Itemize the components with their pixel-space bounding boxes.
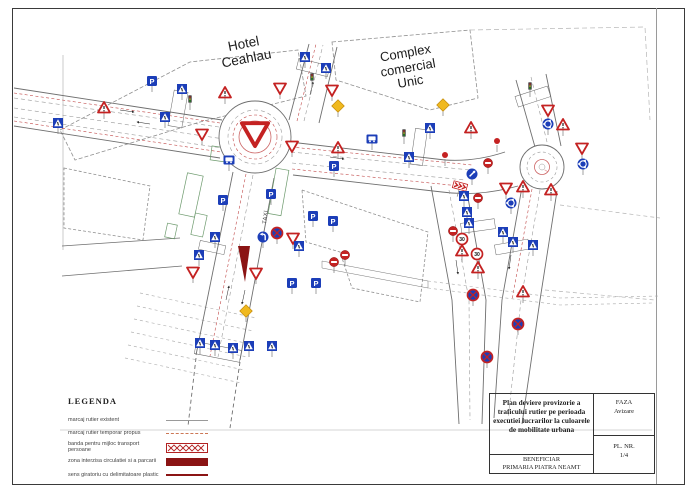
legend-item-public-transport-lane: banda pentru mijloc transport persoane [68, 442, 208, 453]
yield-sign-icon [250, 269, 262, 285]
pedestrian-crossing-sign-icon [528, 240, 538, 256]
yield-sign-icon [576, 144, 588, 160]
svg-text:P: P [330, 217, 335, 226]
legend: LEGENDA marcaj rutier existent marcaj ru… [68, 396, 208, 484]
legend-item-closed-zone: zona interzisa circulatiei si a parcarii [68, 458, 208, 467]
plate-number-cell: PL. NR. 1/4 [594, 436, 654, 473]
pedestrian-crossing-sign-icon [498, 227, 508, 243]
beneficiary-cell: BENEFICIAR PRIMARIA PIATRA NEAMT [490, 454, 593, 473]
svg-text:P: P [268, 190, 273, 199]
taxi-bay-label: TAXI [262, 210, 270, 224]
plan-sheet: TAXI PPPPPPPP3030 Hotel Ceahlau Complex … [0, 0, 696, 491]
bus-stop-sign-icon [224, 156, 235, 172]
parking-sign-icon: P [287, 278, 297, 294]
priority-road-sign-icon [332, 100, 344, 117]
zigzag-swatch-icon [166, 443, 208, 453]
beneficiary-value: PRIMARIA PIATRA NEAMT [492, 464, 591, 472]
beneficiary-label: BENEFICIAR [492, 456, 591, 464]
parking-sign-icon: P [328, 216, 338, 232]
bus-stop-sign-icon [367, 135, 378, 151]
parking-sign-icon: P [218, 195, 228, 211]
svg-text:P: P [149, 77, 154, 86]
traffic-light-icon [402, 129, 405, 144]
svg-text:P: P [289, 279, 294, 288]
no-stopping-sign-icon [482, 352, 493, 369]
warning-sign-icon [465, 122, 477, 139]
plate-number-label: PL. NR. [594, 442, 654, 451]
svg-text:P: P [313, 279, 318, 288]
phase-label: FAZA [594, 398, 654, 407]
yield-sign-icon [196, 130, 208, 146]
turn-left-sign-icon [258, 232, 269, 249]
svg-text:P: P [310, 212, 315, 221]
pedestrian-crossing-sign-icon [244, 341, 254, 357]
pedestrian-crossing-sign-icon [267, 341, 277, 357]
yield-sign-icon [500, 184, 512, 200]
legend-item-giratory: sens giratoriu cu delimitatoare plastic [68, 471, 208, 480]
title-block: Plan deviere provizorie a traficului rut… [489, 393, 655, 474]
parking-sign-icon: P [329, 161, 339, 177]
pedestrian-crossing-sign-icon [294, 241, 304, 257]
roundabout-2 [520, 145, 564, 189]
phase-value: Avizare [594, 407, 654, 416]
no-stopping-sign-icon [272, 228, 283, 245]
svg-text:30: 30 [474, 252, 480, 258]
legend-item-existing-marking: marcaj rutier existent [68, 416, 208, 425]
traffic-light-icon [310, 73, 313, 88]
no-entry-sign-icon [473, 193, 482, 209]
roundabout-sign-icon [543, 118, 554, 135]
svg-text:P: P [331, 162, 336, 171]
closed-zone-island [238, 246, 250, 282]
roundabout-sign-icon [506, 197, 517, 214]
legend-swatch-closed-zone [166, 458, 208, 467]
parking-sign-icon: P [308, 211, 318, 227]
warning-sign-icon [517, 286, 529, 303]
phase-cell: FAZA Avizare [594, 394, 654, 436]
yield-sign-icon [326, 86, 338, 102]
pedestrian-crossing-sign-icon [194, 250, 204, 266]
pedestrian-crossing-sign-icon [459, 191, 469, 207]
svg-text:30: 30 [459, 237, 465, 243]
priority-road-sign-icon [240, 305, 252, 322]
roundabout-sign-icon [578, 158, 589, 175]
legend-swatch-giratory [166, 471, 208, 480]
pedestrian-crossing-sign-icon [321, 63, 331, 79]
plate-number-value: 1/4 [594, 451, 654, 460]
construction-strip [322, 261, 428, 288]
no-entry-sign-icon [340, 250, 349, 266]
warning-sign-icon [456, 245, 468, 262]
parking-sign-icon: P [311, 278, 321, 294]
svg-text:P: P [220, 196, 225, 205]
drawing-title: Plan deviere provizorie a traficului rut… [490, 394, 593, 454]
no-stopping-sign-icon [513, 319, 524, 336]
pedestrian-crossing-sign-icon [404, 152, 414, 168]
legend-swatch-temporary-marking [166, 429, 208, 438]
yield-sign-icon [187, 268, 199, 284]
legend-swatch-existing-marking [166, 416, 208, 425]
legend-item-temporary-marking: marcaj rutier temporar propus [68, 429, 208, 438]
legend-title: LEGENDA [68, 396, 208, 406]
closure-marker-icon [494, 138, 500, 152]
legend-swatch-public-transport-lane [166, 443, 208, 452]
west-block [64, 168, 150, 240]
